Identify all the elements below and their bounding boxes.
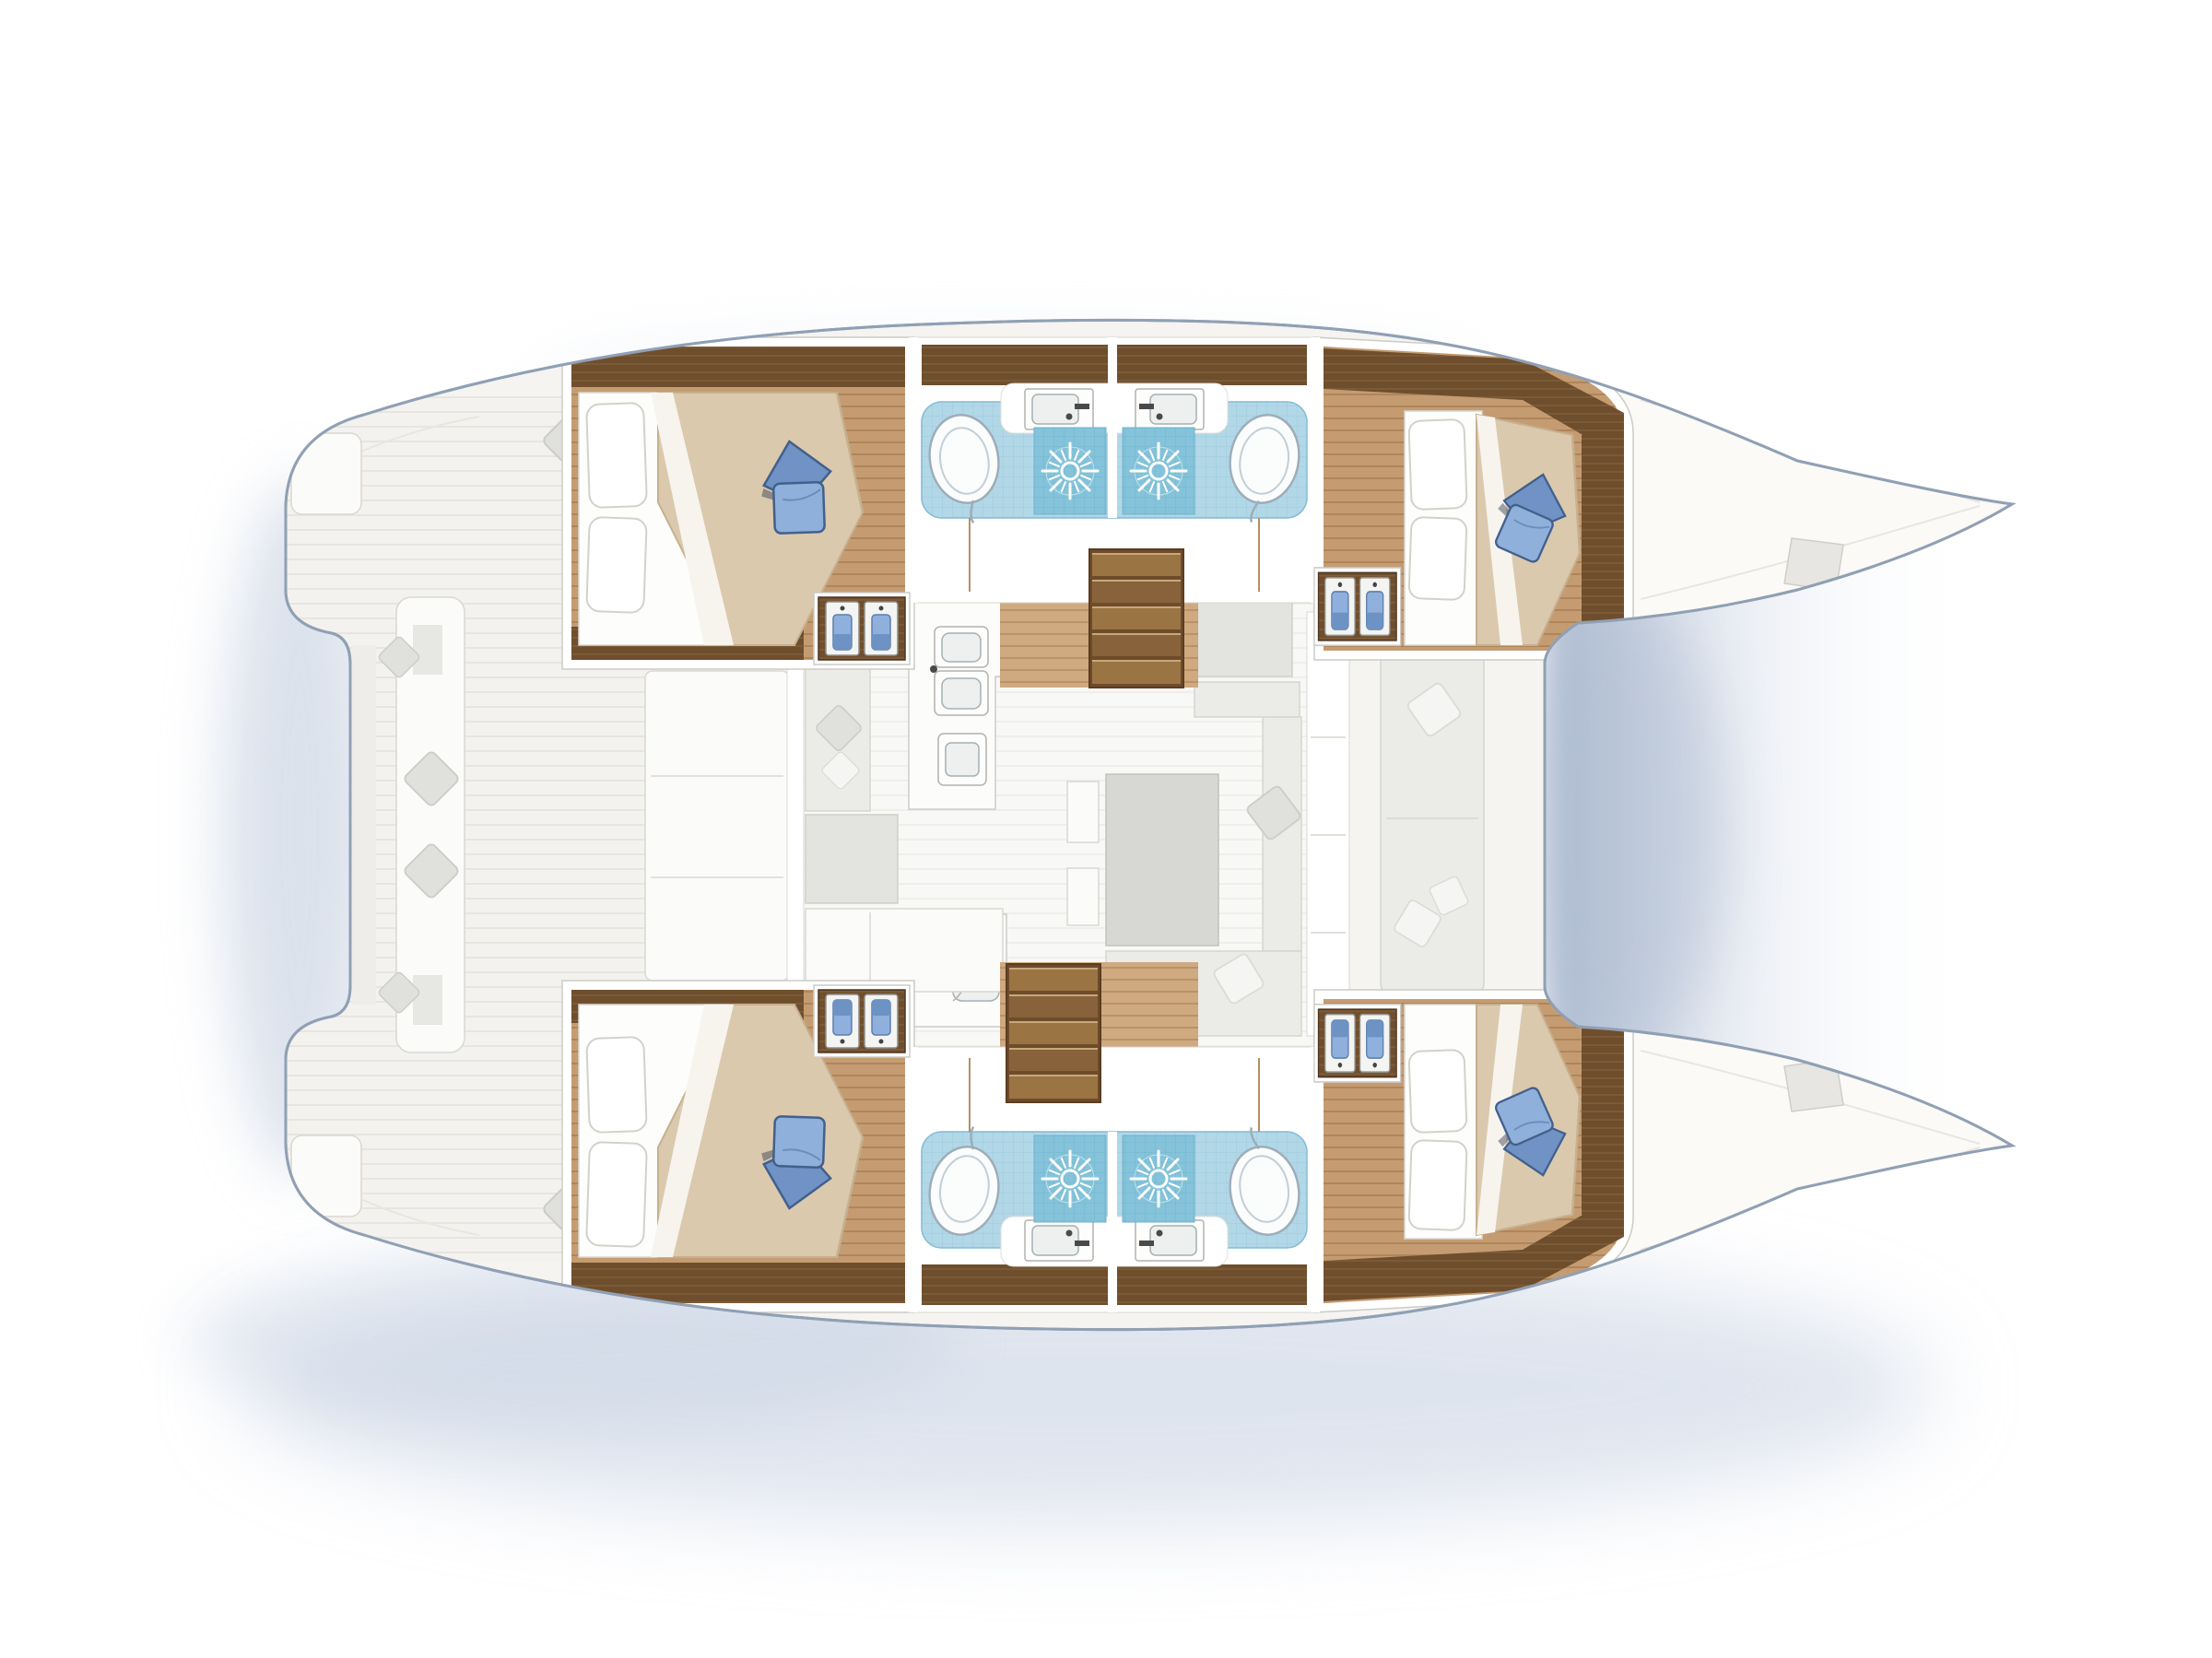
sofa-top-seat (1194, 682, 1300, 717)
transom-step (291, 1135, 361, 1217)
dinette-table (1106, 774, 1218, 946)
transom-step (291, 433, 361, 514)
cockpit-aft-bench (645, 671, 789, 981)
oven (938, 734, 986, 785)
saloon-front-wall (1307, 612, 1349, 1036)
catamaran-floor-plan-page (0, 0, 2212, 1658)
saloon-cabinet (806, 815, 898, 903)
galley-sink (930, 627, 988, 715)
catamaran-floor-plan (0, 0, 2212, 1658)
stool (1067, 868, 1099, 925)
port-companionway-stairs (1089, 549, 1183, 688)
starboard-companionway-stairs (1006, 964, 1100, 1102)
saloon-lower-bench (806, 909, 1003, 992)
sideboard (1191, 597, 1292, 676)
stool (1067, 782, 1099, 842)
saloon-aft-wall (787, 612, 804, 1038)
